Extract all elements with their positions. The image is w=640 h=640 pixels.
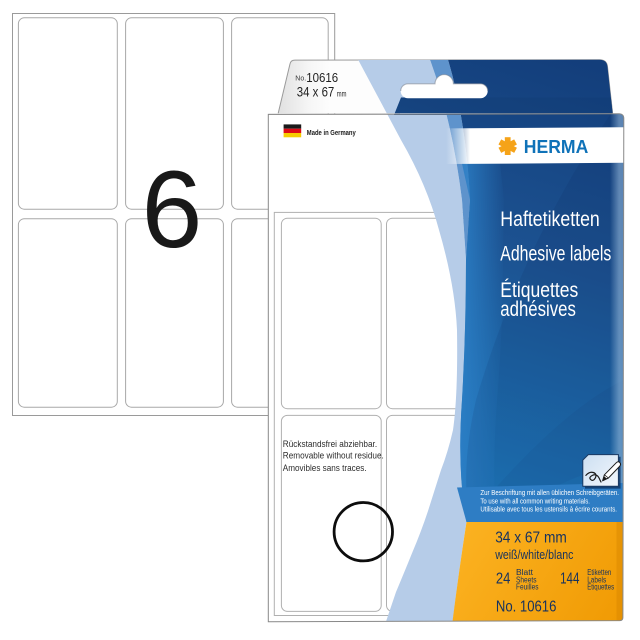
svg-text:Adhesive labels: Adhesive labels xyxy=(500,242,611,265)
svg-text:Utilisable avec tous les usten: Utilisable avec tous les ustensils à écr… xyxy=(480,506,617,513)
svg-text:Made in Germany: Made in Germany xyxy=(307,128,357,137)
svg-text:No.: No. xyxy=(295,76,306,83)
svg-text:Etiquettes: Etiquettes xyxy=(587,583,614,592)
svg-text:mm: mm xyxy=(337,90,347,99)
svg-text:Zur Beschriftung mit allen übl: Zur Beschriftung mit allen üblichen Schr… xyxy=(480,490,619,497)
svg-text:6: 6 xyxy=(142,149,203,271)
svg-text:34 x 67: 34 x 67 xyxy=(297,84,335,100)
svg-text:Removable without residue.: Removable without residue. xyxy=(283,451,384,461)
svg-text:Haftetiketten: Haftetiketten xyxy=(500,208,600,231)
svg-text:weiß/white/blanc: weiß/white/blanc xyxy=(494,548,573,562)
svg-text:Rückstandsfrei abziehbar.: Rückstandsfrei abziehbar. xyxy=(283,439,377,449)
svg-text:144: 144 xyxy=(560,570,580,587)
svg-text:Amovibles sans traces.: Amovibles sans traces. xyxy=(283,463,367,473)
svg-text:Feuilles: Feuilles xyxy=(516,583,539,592)
svg-text:To use with all common writing: To use with all common writing materials… xyxy=(480,498,590,505)
svg-text:adhésives: adhésives xyxy=(500,298,576,321)
svg-text:No. 10616: No. 10616 xyxy=(496,599,557,616)
svg-text:34 x 67 mm: 34 x 67 mm xyxy=(495,529,567,546)
svg-text:HERMA: HERMA xyxy=(524,137,589,157)
svg-text:24: 24 xyxy=(496,570,511,587)
